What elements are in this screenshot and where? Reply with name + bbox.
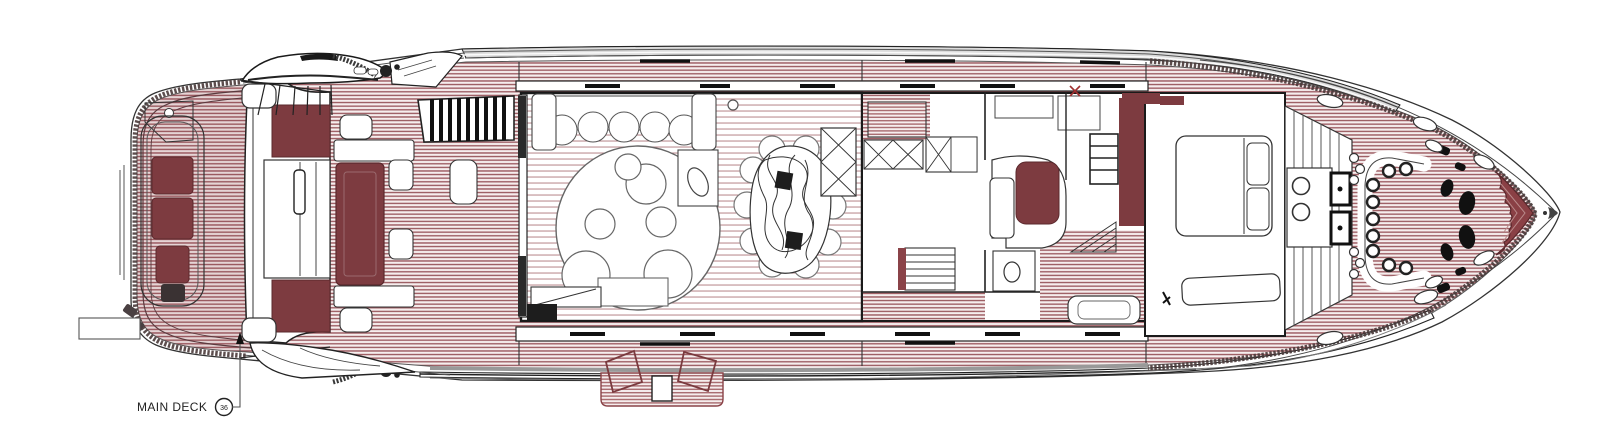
svg-text:MAIN DECK: MAIN DECK bbox=[137, 400, 207, 414]
svg-text:36: 36 bbox=[220, 405, 228, 412]
